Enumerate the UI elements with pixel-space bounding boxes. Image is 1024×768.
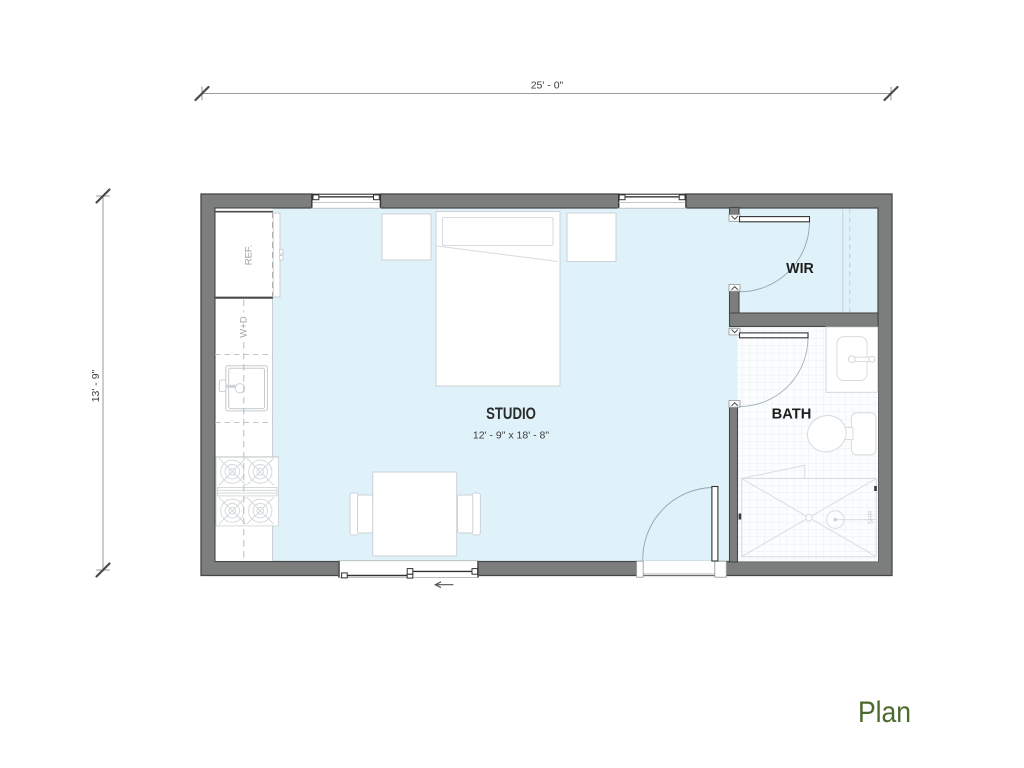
svg-text:Plan: Plan	[858, 696, 911, 729]
svg-text:REF.: REF.	[244, 245, 255, 266]
svg-text:STUDIO: STUDIO	[486, 405, 536, 424]
svg-text:12' - 9" x 18' - 8": 12' - 9" x 18' - 8"	[473, 429, 550, 441]
svg-text:13' - 9": 13' - 9"	[90, 369, 102, 402]
svg-text:25' - 0": 25' - 0"	[531, 80, 564, 92]
svg-text:SHR: SHR	[868, 510, 875, 524]
svg-text:WIR: WIR	[786, 261, 814, 277]
svg-text:BATH: BATH	[772, 406, 812, 422]
svg-text:W+D: W+D	[239, 316, 250, 338]
